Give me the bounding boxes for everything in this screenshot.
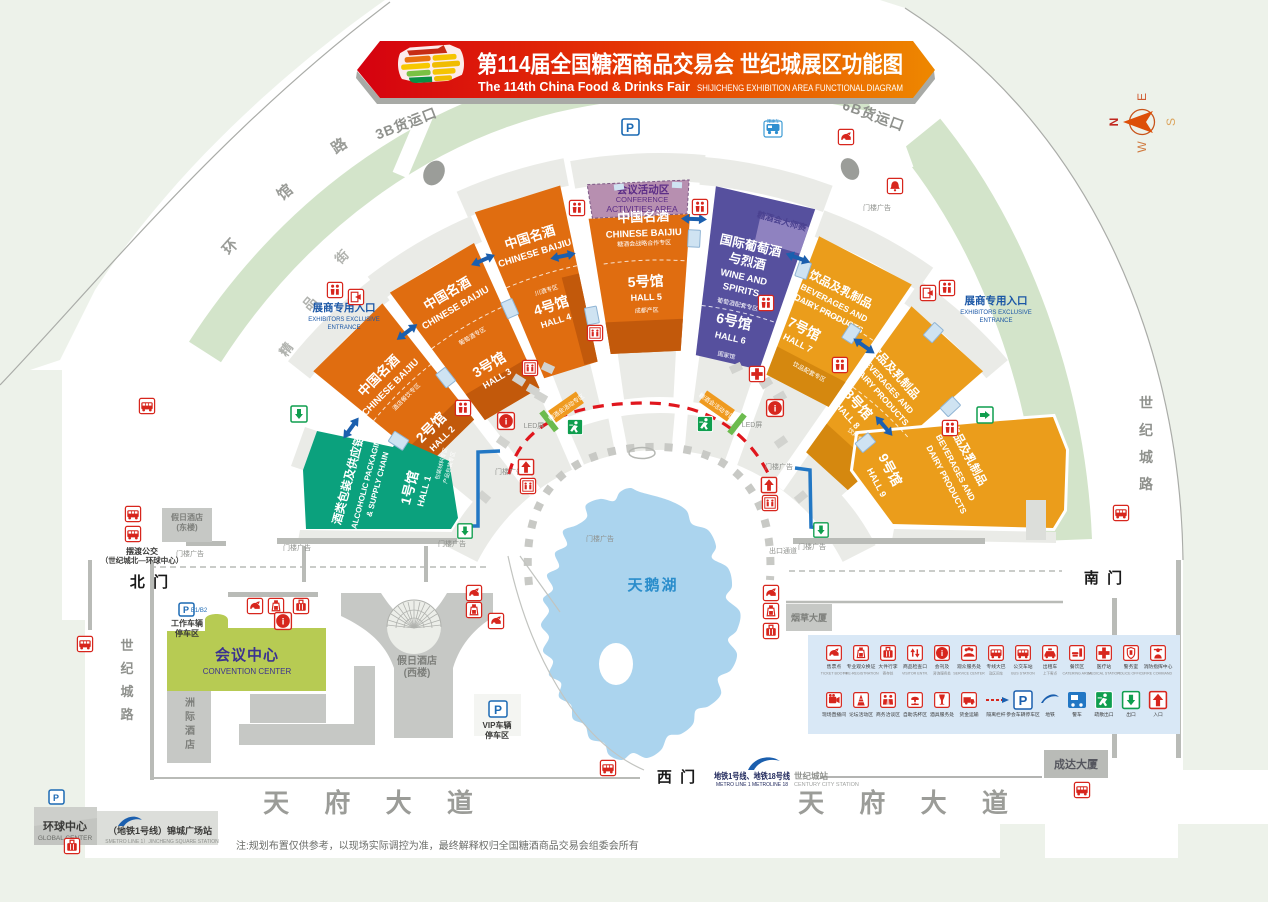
svg-text:第114届全国糖酒商品交易会 世纪城展区功能图: 第114届全国糖酒商品交易会 世纪城展区功能图: [477, 51, 903, 77]
svg-text:及区间车: 及区间车: [989, 671, 1004, 676]
svg-text:出租车: 出租车: [1043, 663, 1058, 670]
svg-text:环球中心: 环球中心: [43, 819, 87, 833]
svg-text:隔离栏杆: 隔离栏杆: [986, 711, 1005, 718]
svg-text:消防指挥中心: 消防指挥中心: [1144, 663, 1173, 670]
svg-text:5号馆: 5号馆: [627, 273, 663, 290]
svg-text:i: i: [941, 649, 943, 658]
svg-text:W: W: [1135, 141, 1149, 153]
svg-text:METRO LINE 1 METROLINE 18: METRO LINE 1 METROLINE 18: [716, 782, 788, 788]
svg-text:（世纪城北—环球中心）: （世纪城北—环球中心）: [101, 555, 184, 565]
svg-text:城: 城: [1139, 449, 1153, 465]
svg-text:FIRE COMMAND: FIRE COMMAND: [1144, 672, 1173, 676]
svg-text:工作车辆: 工作车辆: [171, 618, 203, 628]
svg-text:警务室: 警务室: [1124, 663, 1139, 670]
svg-text:天 府 大 道: 天 府 大 道: [798, 788, 1022, 818]
svg-text:EXHIBITORS EXCLUSIVE: EXHIBITORS EXCLUSIVE: [308, 317, 380, 323]
svg-text:世: 世: [120, 638, 133, 653]
svg-text:南 门: 南 门: [1084, 569, 1124, 587]
svg-text:酒: 酒: [185, 724, 195, 737]
svg-text:i: i: [282, 617, 285, 628]
svg-text:S: S: [1164, 118, 1178, 126]
svg-text:天 府 大 道: 天 府 大 道: [263, 788, 487, 818]
svg-text:ENTRANCE: ENTRANCE: [327, 325, 360, 331]
svg-text:B1/B2: B1/B2: [191, 608, 208, 614]
svg-text:门楼广告: 门楼广告: [438, 539, 466, 548]
svg-text:CONFERENCE: CONFERENCE: [616, 195, 669, 204]
svg-text:城: 城: [120, 684, 133, 699]
svg-text:门楼广告: 门楼广告: [176, 549, 204, 558]
svg-text:PRE-REGISTRATION: PRE-REGISTRATION: [843, 672, 879, 676]
svg-text:货金运输: 货金运输: [959, 711, 978, 718]
svg-text:路: 路: [1139, 476, 1154, 492]
svg-text:假日酒店: 假日酒店: [397, 654, 437, 667]
svg-text:展商专用入口: 展商专用入口: [965, 294, 1028, 307]
svg-text:SHIJICHENG EXHIBITION AREA FUN: SHIJICHENG EXHIBITION AREA FUNCTIONAL DI…: [697, 83, 903, 94]
svg-text:会议中心: 会议中心: [215, 646, 279, 664]
svg-text:商品检查口: 商品检查口: [903, 663, 927, 670]
svg-text:POLICE OFFICE: POLICE OFFICE: [1117, 672, 1145, 676]
svg-text:西 门: 西 门: [657, 768, 697, 786]
svg-text:CONVENTION CENTER: CONVENTION CENTER: [203, 667, 292, 676]
svg-text:餐饮区: 餐饮区: [1070, 663, 1085, 670]
svg-text:注:规划布置仅供参考，以现场实际调控为准，最终解释权归全国糖: 注:规划布置仅供参考，以现场实际调控为准，最终解释权归全国糖酒商品交易会组委会所…: [236, 839, 639, 852]
svg-text:门楼广告: 门楼广告: [586, 534, 614, 543]
svg-text:E: E: [1135, 93, 1149, 101]
svg-text:i: i: [505, 417, 508, 428]
svg-text:出口: 出口: [1126, 711, 1136, 718]
svg-text:(西楼): (西楼): [404, 666, 431, 679]
svg-text:疏散出口: 疏散出口: [1094, 711, 1113, 718]
svg-text:寄存处: 寄存处: [883, 671, 894, 676]
svg-text:会刊及: 会刊及: [935, 663, 950, 670]
svg-text:现场直播间: 现场直播间: [822, 711, 846, 718]
svg-text:地铁1号线、地铁18号线: 地铁1号线、地铁18号线: [714, 771, 790, 781]
svg-text:洲: 洲: [185, 697, 195, 709]
svg-text:摆渡公交: 摆渡公交: [126, 546, 158, 556]
svg-text:门楼广告: 门楼广告: [863, 203, 891, 212]
svg-text:警车: 警车: [1072, 711, 1082, 718]
svg-text:世纪城站: 世纪城站: [794, 771, 829, 781]
svg-text:公交车站: 公交车站: [1013, 663, 1032, 670]
svg-text:SMETRO LINE 1）JINCHENG SQUARE: SMETRO LINE 1）JINCHENG SQUARE STATION: [105, 839, 219, 845]
svg-text:天鹅湖: 天鹅湖: [627, 576, 678, 594]
svg-text:售票点: 售票点: [827, 663, 842, 670]
svg-text:商务洽谈区: 商务洽谈区: [876, 711, 900, 718]
svg-text:LED屏: LED屏: [742, 421, 763, 429]
svg-text:HALL 5: HALL 5: [630, 292, 662, 303]
svg-text:路: 路: [120, 707, 134, 722]
svg-text:门楼广告: 门楼广告: [765, 462, 793, 471]
svg-text:展商专用入口: 展商专用入口: [313, 301, 376, 314]
svg-text:参会车辆停车区: 参会车辆停车区: [1006, 711, 1040, 718]
svg-text:CENTURY CITY STATION: CENTURY CITY STATION: [794, 782, 859, 788]
svg-text:店: 店: [185, 738, 195, 751]
svg-text:酒具服务处: 酒具服务处: [930, 711, 954, 718]
svg-text:自助洗杯区: 自助洗杯区: [903, 711, 927, 718]
svg-text:咨询服务处: 咨询服务处: [933, 671, 951, 676]
svg-text:P: P: [53, 793, 59, 803]
svg-text:大件行李: 大件行李: [878, 663, 897, 670]
svg-text:专业观众换证: 专业观众换证: [847, 663, 876, 670]
svg-text:i: i: [774, 404, 777, 415]
svg-text:P: P: [1019, 693, 1028, 708]
svg-text:P: P: [183, 605, 189, 615]
svg-text:The 114th China Food & Drinks: The 114th China Food & Drinks Fair: [478, 80, 690, 94]
svg-text:P: P: [494, 703, 502, 717]
svg-text:EXHIBITORS EXCLUSIVE: EXHIBITORS EXCLUSIVE: [960, 310, 1032, 316]
svg-text:MEDICAL STATION: MEDICAL STATION: [1088, 672, 1120, 676]
svg-text:入口: 入口: [1153, 712, 1163, 718]
svg-text:P: P: [626, 121, 634, 135]
svg-text:门楼广告: 门楼广告: [283, 543, 311, 552]
svg-text:摆渡车: 摆渡车: [767, 118, 779, 124]
svg-text:上下客点: 上下客点: [1043, 671, 1058, 676]
svg-text:BUS STATION: BUS STATION: [1011, 672, 1035, 676]
svg-text:SERVICE CENTER: SERVICE CENTER: [953, 672, 985, 676]
svg-text:烟草大厦: 烟草大厦: [791, 612, 828, 623]
svg-text:出口通道: 出口通道: [769, 546, 797, 555]
svg-text:论坛活动区: 论坛活动区: [849, 711, 873, 718]
svg-text:门楼广告: 门楼广告: [798, 542, 826, 551]
svg-text:纪: 纪: [120, 661, 133, 676]
svg-text:停车区: 停车区: [175, 628, 199, 638]
svg-text:假日酒店: 假日酒店: [171, 512, 203, 522]
svg-text:ACTIVITIES AREA: ACTIVITIES AREA: [606, 204, 678, 214]
svg-text:观众服务处: 观众服务处: [957, 663, 981, 670]
svg-text:N: N: [1107, 118, 1121, 127]
svg-text:纪: 纪: [1139, 422, 1153, 438]
svg-text:停车区: 停车区: [485, 730, 509, 740]
svg-text:世: 世: [1139, 395, 1153, 411]
svg-text:(东楼): (东楼): [176, 522, 198, 532]
svg-text:际: 际: [185, 711, 195, 723]
svg-text:（地铁1号线）锦城广场站: （地铁1号线）锦城广场站: [108, 825, 212, 836]
svg-text:专线大巴: 专线大巴: [986, 663, 1005, 670]
svg-text:地铁: 地铁: [1045, 711, 1055, 718]
svg-text:LED屏: LED屏: [524, 422, 545, 430]
svg-text:ENTRANCE: ENTRANCE: [979, 318, 1012, 324]
svg-text:VIP车辆: VIP车辆: [483, 720, 512, 730]
svg-text:成达大厦: 成达大厦: [1054, 757, 1099, 771]
svg-text:VISITOR ENTR.: VISITOR ENTR.: [902, 672, 928, 676]
svg-text:医疗站: 医疗站: [1097, 663, 1112, 670]
